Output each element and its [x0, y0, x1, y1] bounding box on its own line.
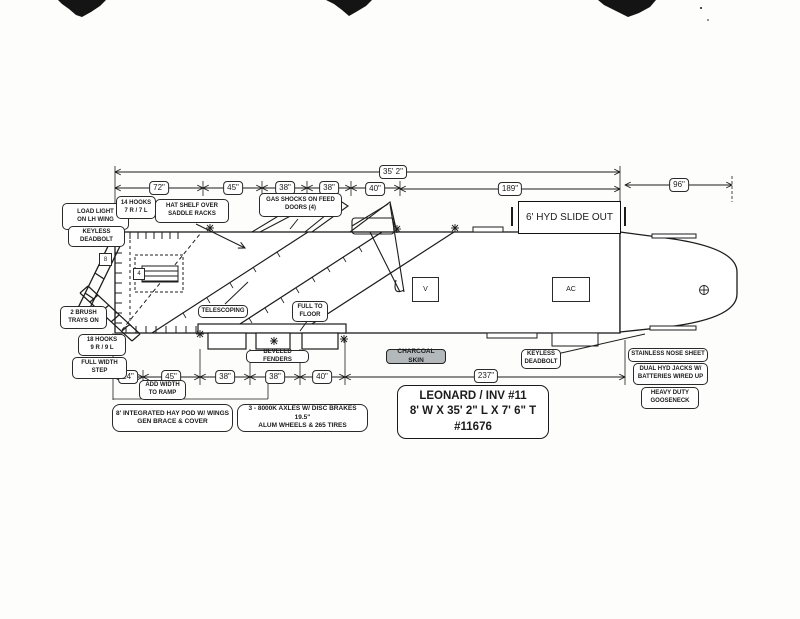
callout-keyless-deadbolt-right: KEYLESS DEADBOLT: [521, 349, 561, 369]
dim-top-40: 40": [365, 182, 385, 196]
side-step: [552, 333, 598, 346]
drawing-linework: [0, 0, 800, 619]
slide-out-box: 6' HYD SLIDE OUT: [518, 201, 621, 234]
callout-full-width-step: FULL WIDTH STEP: [72, 357, 127, 379]
callout-add-width-to-ramp: ADD WIDTH TO RAMP: [139, 380, 186, 400]
jack-symbol: [700, 286, 709, 295]
callout-hooks-bottom: 18 HOOKS 9 R / 9 L: [78, 334, 126, 356]
title-block: LEONARD / INV #11 8' W X 35' 2" L X 7' 6…: [397, 385, 549, 439]
callout-hyd-jacks: DUAL HYD JACKS W/ BATTERIES WIRED UP: [633, 363, 708, 385]
dim-gooseneck-96: 96": [669, 178, 689, 192]
callout-hay-pod: 8' INTEGRATED HAY POD W/ WINGS GEN BRACE…: [112, 404, 233, 432]
fenders-wheels: [198, 324, 346, 349]
trailer-spec-drawing: 35' 2" 72" 45" 38" 38" 40" 189" 96" 24" …: [0, 0, 800, 619]
callout-hooks-top: 14 HOOKS 7 R / 7 L: [116, 196, 156, 219]
dim-bottom-38b: 38": [265, 370, 285, 384]
dim-top-72: 72": [149, 181, 169, 195]
callout-beveled-fenders: BEVELED FENDERS: [246, 350, 309, 363]
callout-axles: 3 - 8000K AXLES W/ DISC BRAKES 19.5" ALU…: [237, 404, 368, 432]
callout-stainless-nose: STAINLESS NOSE SHEET: [628, 348, 708, 362]
callout-heavy-duty-gooseneck: HEAVY DUTY GOOSENECK: [641, 387, 699, 409]
callout-telescoping: TELESCOPING: [198, 305, 248, 318]
callout-brush-trays: 2 BRUSH TRAYS ON: [60, 306, 107, 329]
rack-marker: 4: [133, 268, 145, 280]
ac-unit-marker: AC: [552, 277, 590, 302]
dim-top-45: 45": [223, 181, 243, 195]
dim-bottom-237: 237": [474, 369, 498, 383]
dim-overall-length: 35' 2": [379, 165, 407, 179]
callout-gas-shocks: GAS SHOCKS ON FEED DOORS (4): [259, 193, 342, 217]
scan-artifact-blobs: [58, 0, 709, 21]
callout-full-to-floor: FULL TO FLOOR: [292, 301, 328, 322]
title-line-model: LEONARD / INV #11: [419, 389, 526, 405]
vent-marker: V: [412, 277, 439, 302]
saddle-rack-detail: [142, 266, 178, 282]
dim-top-189: 189": [498, 182, 522, 196]
callout-keyless-deadbolt-left: KEYLESS DEADBOLT: [68, 226, 125, 247]
dim-bottom-40: 40": [312, 370, 332, 384]
door-marker: 8: [99, 253, 112, 266]
callout-hat-shelf: HAT SHELF OVER SADDLE RACKS: [155, 199, 229, 223]
dim-bottom-38a: 38": [215, 370, 235, 384]
title-line-number: #11676: [454, 420, 492, 436]
callout-charcoal-skin: CHARCOAL SKIN: [386, 349, 446, 364]
title-line-size: 8' W X 35' 2" L X 7' 6" T: [410, 404, 536, 420]
